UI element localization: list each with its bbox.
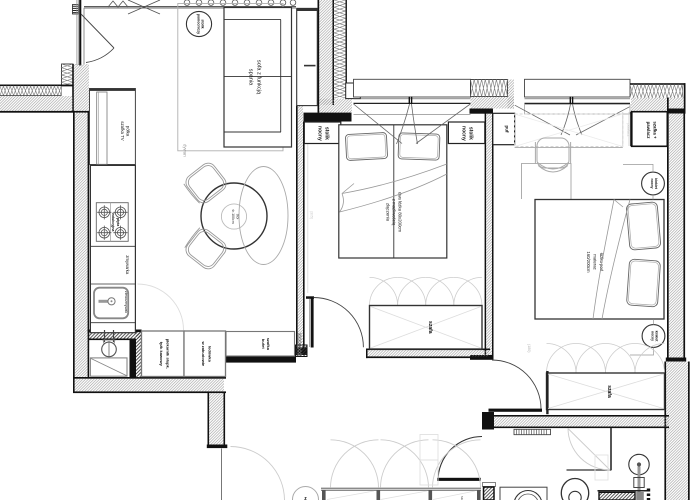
- svg-text:z możliwością: z możliwością: [392, 199, 397, 226]
- svg-text:szafa: szafa: [606, 385, 612, 398]
- svg-text:szafa: szafa: [427, 321, 433, 334]
- svg-text:lodówka: lodówka: [208, 346, 213, 363]
- svg-text:pomocniczy: pomocniczy: [197, 14, 201, 34]
- svg-text:zmywarka: zmywarka: [125, 255, 130, 275]
- svg-text:bufet: bufet: [261, 339, 266, 349]
- svg-text:pawlacz: pawlacz: [627, 124, 631, 137]
- svg-text:złączenia: złączenia: [386, 203, 391, 222]
- svg-text:nocny: nocny: [316, 126, 322, 141]
- svg-text:półka: półka: [126, 126, 131, 137]
- svg-text:puf: puf: [505, 125, 510, 133]
- svg-text:piekarnik słupk.: piekarnik słupk.: [166, 339, 171, 369]
- svg-text:materac: materac: [593, 254, 598, 270]
- svg-text:szafka TV: szafka TV: [120, 121, 125, 141]
- svg-text:nocny: nocny: [650, 179, 654, 189]
- svg-text:nocny: nocny: [460, 126, 466, 141]
- svg-text:dwa łóżka 80x200cm: dwa łóżka 80x200cm: [398, 192, 403, 233]
- svg-text:stolik: stolik: [467, 127, 473, 140]
- svg-text:(180): (180): [527, 344, 531, 352]
- svg-text:dywan: dywan: [183, 144, 188, 157]
- svg-text:w zabudowie: w zabudowie: [201, 340, 206, 366]
- svg-text:stolik: stolik: [323, 127, 329, 140]
- svg-text:(305): (305): [310, 211, 314, 219]
- svg-text:spania: spania: [248, 69, 254, 86]
- svg-text:śr.100cm: śr.100cm: [231, 209, 235, 223]
- svg-text:zlewozmywak: zlewozmywak: [124, 291, 128, 313]
- svg-text:szafa: szafa: [460, 496, 464, 500]
- svg-text:kinkiet: kinkiet: [655, 331, 659, 343]
- svg-text:indukcyjna: indukcyjna: [111, 213, 115, 233]
- svg-text:kinkiet: kinkiet: [654, 178, 658, 190]
- svg-text:łyżk kawowy: łyżk kawowy: [159, 342, 164, 367]
- svg-text:pawlacz: pawlacz: [646, 122, 651, 140]
- svg-text:160/200cm: 160/200cm: [586, 251, 591, 273]
- svg-text:płyta: płyta: [116, 218, 120, 227]
- svg-text:sofa z funkcją: sofa z funkcją: [256, 60, 262, 95]
- svg-text:nocny: nocny: [650, 331, 654, 341]
- svg-text:szafka +: szafka +: [653, 121, 658, 139]
